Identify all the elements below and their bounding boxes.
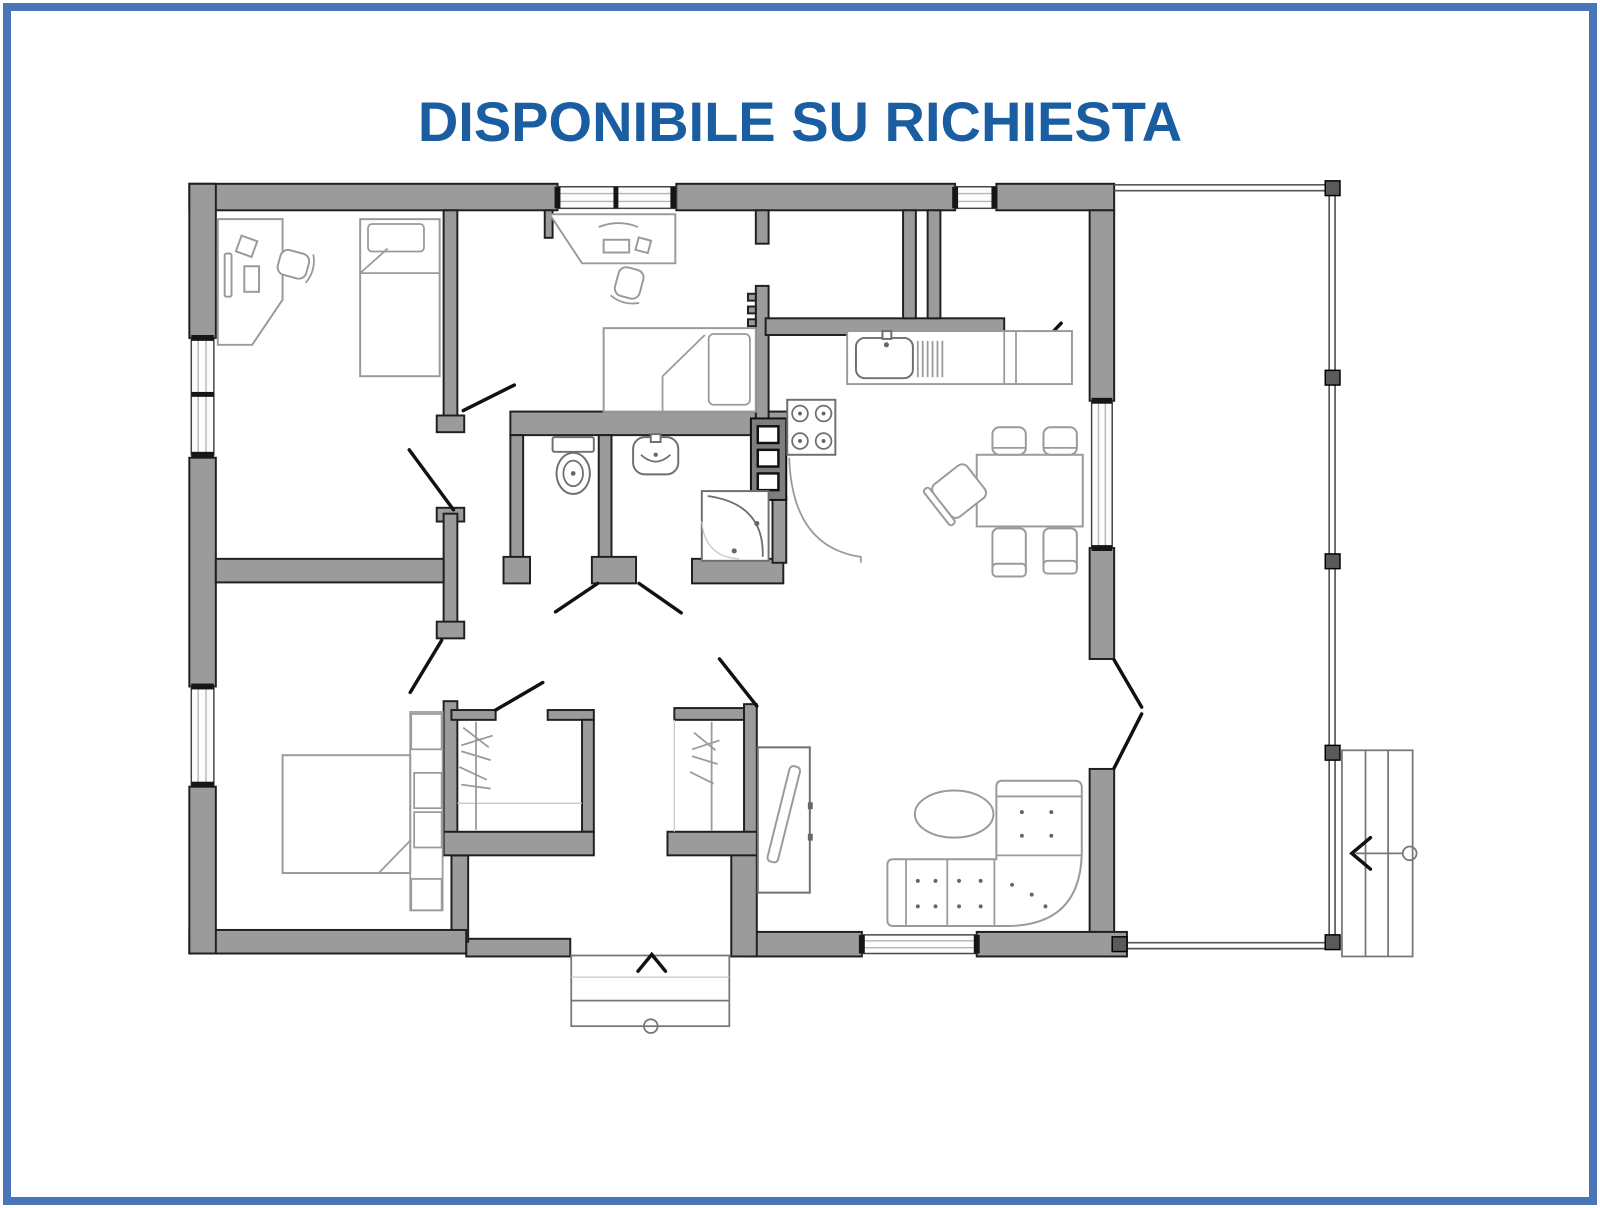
floor-plan [11, 11, 1589, 1197]
window-right-dining [1092, 398, 1113, 551]
wardrobe-right-icon [674, 720, 719, 832]
curved-counter-icon [789, 458, 861, 563]
door-wardrobe-right [719, 659, 756, 706]
chair-icon [992, 528, 1025, 576]
window-left-upper [191, 335, 214, 458]
single-bed-icon [604, 328, 756, 411]
dining-table-icon [977, 455, 1083, 527]
keyboard-icon [604, 240, 630, 253]
bedroom-2-furniture [550, 214, 756, 411]
coffee-table-icon [915, 791, 994, 838]
door-bathroom [639, 583, 681, 612]
door-bedroom-office [409, 450, 453, 510]
french-door-leaf-b [1114, 714, 1141, 768]
bedroom-office-furniture [218, 219, 440, 376]
boiler-unit-icon [751, 418, 786, 499]
dining-furniture [923, 427, 1083, 576]
double-bed-icon [283, 755, 411, 873]
window-top-right [952, 187, 997, 209]
tv-sideboard-icon [758, 747, 813, 892]
corner-shower-icon [702, 491, 769, 561]
wardrobe-left-icon [457, 722, 582, 830]
door-bedroom-2 [463, 385, 514, 411]
kitchen-furniture [787, 331, 1072, 563]
mouse-icon [635, 237, 651, 253]
desk-icon [550, 214, 676, 263]
door-hall [556, 583, 598, 611]
chair-icon [1043, 528, 1076, 573]
washbasin-icon [633, 434, 678, 474]
single-bed-icon [360, 219, 440, 376]
living-room-furniture [758, 747, 1082, 926]
door-master-bedroom [410, 640, 441, 692]
wc-furniture [553, 437, 594, 494]
master-bedroom-furniture [283, 712, 443, 910]
toilet-icon [553, 437, 594, 494]
entrance-steps [571, 954, 729, 1033]
entry-arrow-icon [638, 954, 665, 971]
office-chair-icon [610, 265, 647, 306]
bathroom-furniture [633, 434, 768, 561]
window-top-left [555, 187, 677, 209]
keyboard-icon [244, 266, 259, 292]
french-door-leaf-a [1114, 660, 1141, 707]
monitor-icon [225, 254, 232, 297]
door-wardrobe-left [496, 683, 543, 710]
kitchen-sink-icon [856, 331, 913, 378]
headboard-shelves-icon [410, 712, 442, 910]
terrace [1112, 181, 1340, 952]
chair-icon [992, 427, 1025, 454]
window-bottom-living [859, 935, 980, 954]
chair-icon [1043, 427, 1076, 454]
terrace-posts [1112, 181, 1340, 952]
window-left-lower [191, 684, 214, 788]
stove-icon [787, 400, 835, 455]
image-frame: DISPONIBILE SU RICHIESTA [3, 3, 1597, 1205]
external-stairs [1342, 750, 1417, 956]
